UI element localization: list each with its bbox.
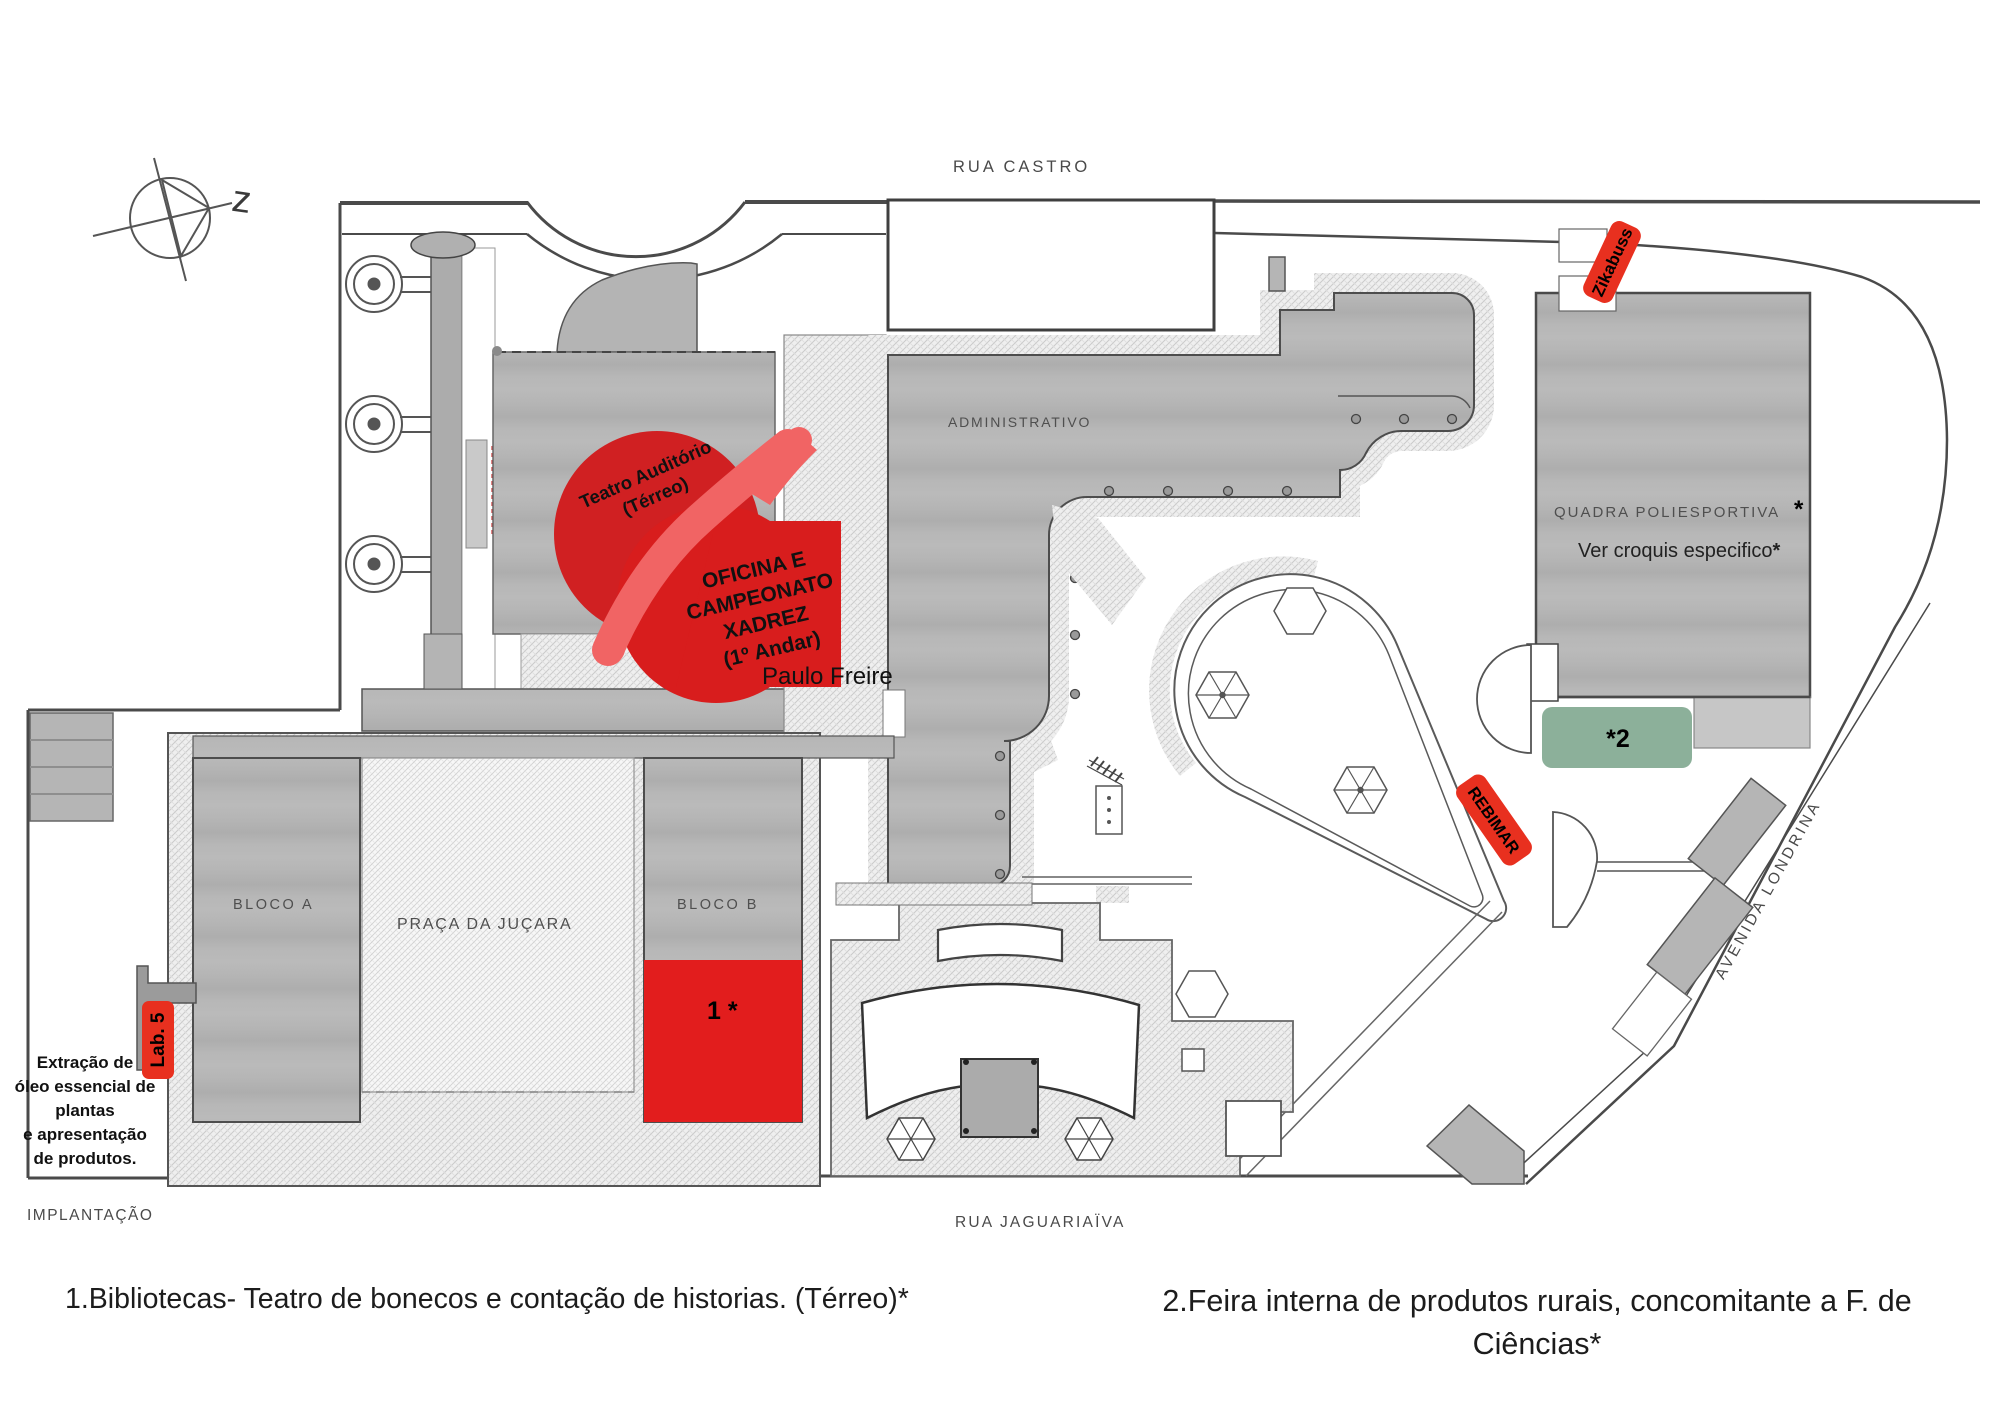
svg-text:e apresentação: e apresentação — [23, 1125, 147, 1144]
svg-text:QUADRA POLIESPORTIVA: QUADRA POLIESPORTIVA — [1554, 504, 1780, 521]
svg-text:1 *: 1 * — [707, 997, 738, 1025]
svg-text:RUA CASTRO: RUA CASTRO — [953, 158, 1090, 176]
svg-text:Paulo Freire: Paulo Freire — [762, 663, 893, 690]
svg-text:Extração de: Extração de — [37, 1053, 133, 1072]
svg-text:de produtos.: de produtos. — [34, 1149, 137, 1168]
svg-text:*: * — [1794, 496, 1804, 523]
svg-text:ADMINISTRATIVO: ADMINISTRATIVO — [948, 414, 1091, 430]
svg-text:Ciências*: Ciências* — [1473, 1327, 1602, 1361]
svg-text:RUA JAGUARIAÏVA: RUA JAGUARIAÏVA — [955, 1214, 1126, 1231]
svg-text:plantas: plantas — [55, 1101, 115, 1120]
svg-text:1.Bibliotecas- Teatro de bonec: 1.Bibliotecas- Teatro de bonecos e conta… — [65, 1283, 909, 1315]
svg-text:Lab. 5: Lab. 5 — [148, 1012, 169, 1067]
svg-text:BLOCO B: BLOCO B — [677, 897, 759, 913]
svg-text:2.Feira interna de produtos ru: 2.Feira interna de produtos rurais, conc… — [1162, 1284, 1911, 1318]
svg-text:Ver croquis especifico*: Ver croquis especifico* — [1578, 540, 1781, 562]
svg-text:IMPLANTAÇÃO: IMPLANTAÇÃO — [27, 1207, 153, 1224]
svg-text:BLOCO A: BLOCO A — [233, 897, 314, 913]
svg-text:PRAÇA DA JUÇARA: PRAÇA DA JUÇARA — [397, 916, 572, 933]
svg-text:*2: *2 — [1606, 725, 1630, 753]
svg-text:óleo essencial de: óleo essencial de — [15, 1077, 156, 1096]
